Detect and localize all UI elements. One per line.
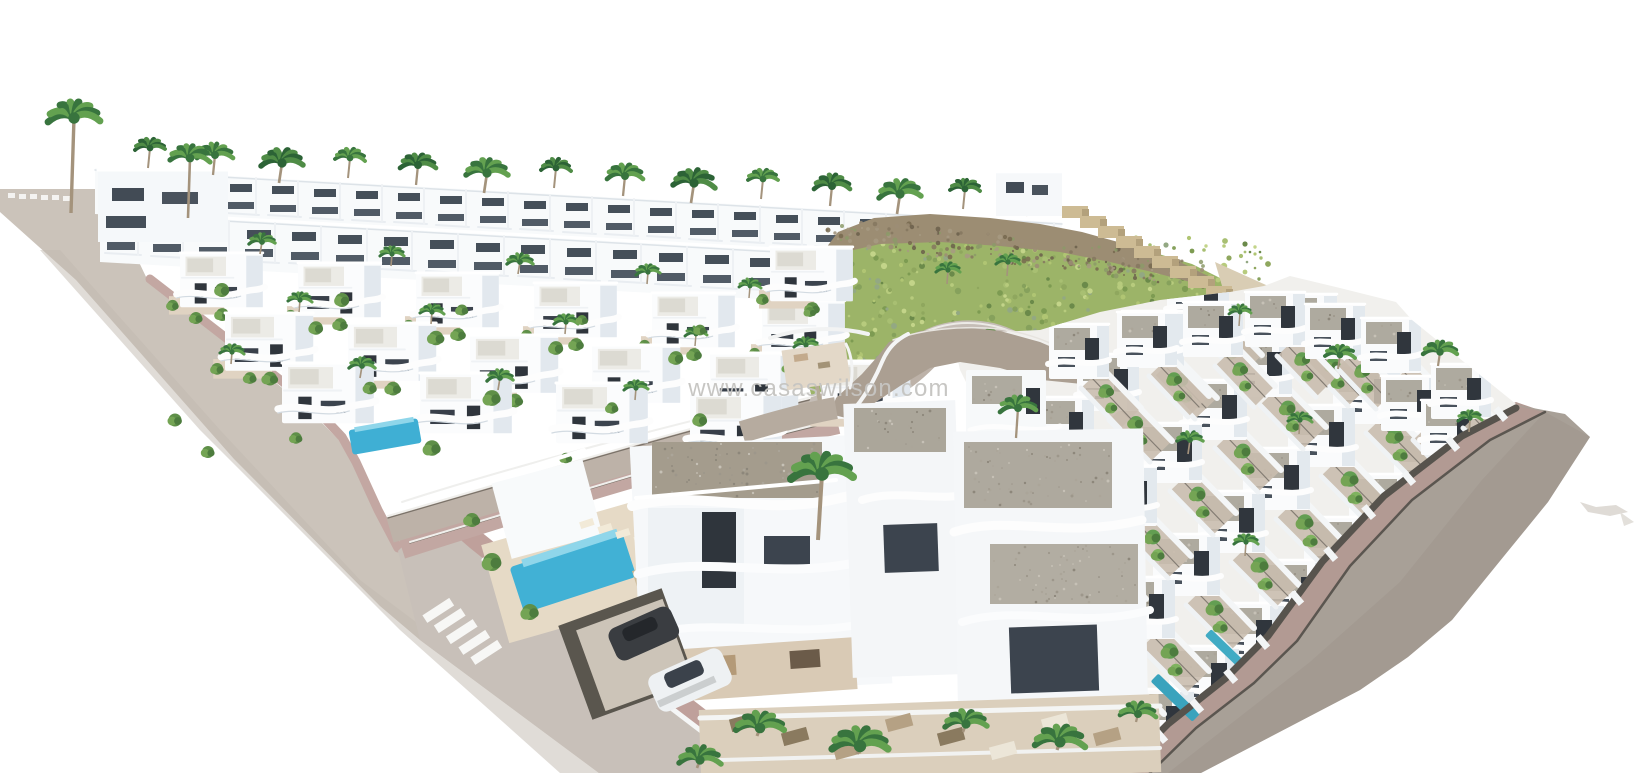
svg-text:www.casaswilson.com: www.casaswilson.com [687,375,950,402]
